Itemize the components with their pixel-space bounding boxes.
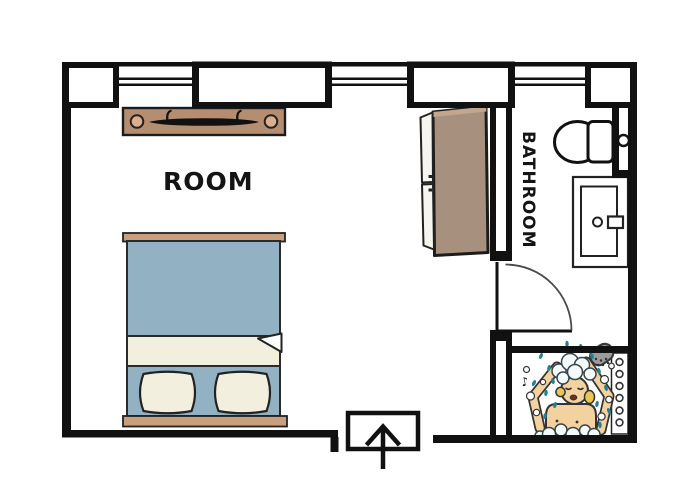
wardrobe — [421, 107, 489, 256]
wall-pier-core — [591, 68, 630, 102]
service-chase-cap — [612, 170, 633, 178]
wall-stub — [331, 437, 339, 452]
chest-dot — [576, 421, 579, 424]
music-note-icon: ♪ — [520, 374, 530, 389]
mouth — [570, 395, 576, 400]
screen-dot — [616, 371, 623, 378]
wall-pier-core — [69, 68, 113, 102]
bed-headboard — [123, 416, 287, 427]
wardrobe-door-open — [421, 113, 434, 183]
toilet — [555, 122, 614, 163]
door-swing-arc — [506, 265, 572, 331]
valve-knob — [618, 135, 629, 146]
outer-wall-left — [62, 62, 71, 437]
entrance — [348, 413, 418, 469]
screen-dot — [616, 395, 623, 402]
wall-pier-core — [414, 68, 508, 102]
shower-wall — [512, 346, 628, 353]
wardrobe-body — [433, 107, 488, 256]
sink-vanity — [573, 177, 628, 267]
wardrobe-handle — [429, 189, 433, 192]
pillow — [140, 372, 195, 414]
sink-drain — [593, 218, 602, 227]
partition-wall-cap — [490, 251, 512, 261]
screen-dot — [616, 419, 623, 426]
floor-plan-drawing: ♪ — [0, 0, 700, 500]
faucet — [608, 217, 623, 229]
bottom-wall-right — [433, 435, 637, 443]
screen-dot — [616, 407, 623, 414]
window — [119, 62, 192, 86]
bathroom-label: BATHROOM — [516, 131, 540, 249]
wall-pier-core — [199, 68, 325, 102]
wardrobe-handle — [429, 175, 433, 178]
window-shelf — [123, 108, 285, 135]
hair — [556, 387, 565, 396]
partition-wall-upper — [490, 103, 496, 261]
toilet-tank — [588, 122, 613, 163]
screen-dot — [616, 359, 623, 366]
partition-wall-lower — [490, 330, 496, 435]
room-label: ROOM — [163, 167, 254, 196]
shelf-bracket — [131, 115, 144, 128]
partition-wall-upper — [506, 103, 512, 261]
wardrobe-door-open — [422, 184, 434, 250]
window — [515, 62, 585, 86]
bathroom-door — [496, 262, 573, 333]
screen-dot — [616, 383, 623, 390]
floor-plan: ♪ — [0, 0, 700, 500]
door-leaf-closed — [496, 262, 499, 331]
window — [332, 62, 407, 86]
chest-dot — [556, 420, 559, 423]
bed-sheet — [127, 336, 280, 366]
outer-wall-right — [628, 62, 637, 443]
double-bed — [123, 233, 287, 427]
pillow — [215, 372, 270, 414]
door-leaf-open — [498, 330, 572, 333]
bottom-wall-left — [62, 430, 338, 438]
shelf-bracket — [265, 115, 278, 128]
partition-wall-lower — [506, 330, 512, 435]
hair — [585, 391, 595, 404]
